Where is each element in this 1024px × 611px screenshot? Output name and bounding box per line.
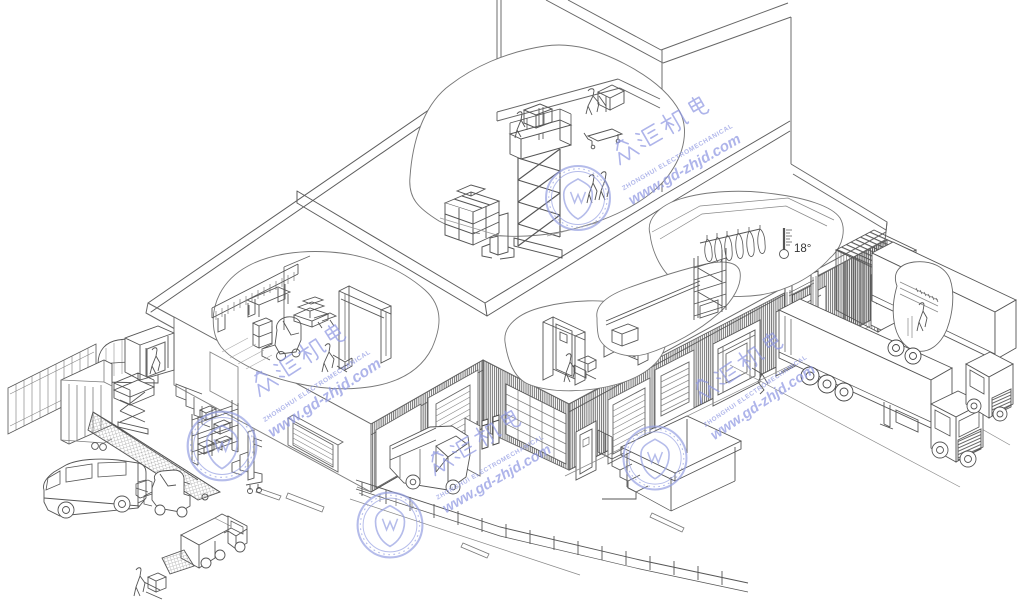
svg-text:18°: 18° bbox=[794, 243, 811, 255]
